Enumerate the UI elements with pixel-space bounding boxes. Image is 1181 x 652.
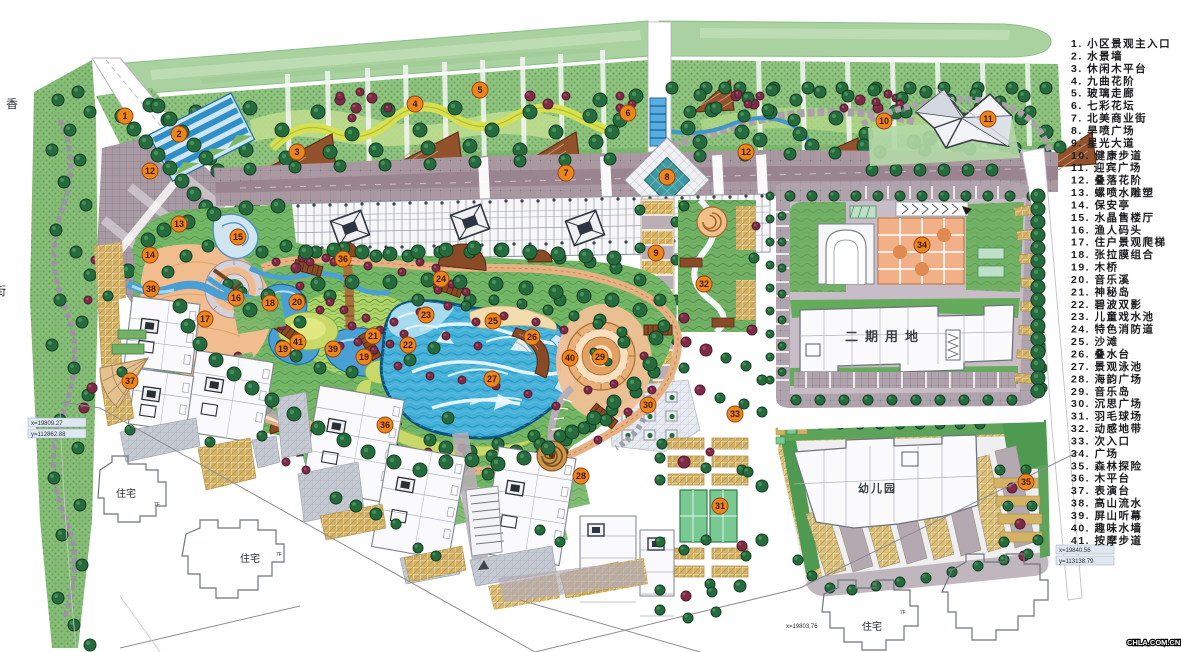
svg-text:5. 玻璃走廊: 5. 玻璃走廊 <box>1071 87 1135 100</box>
svg-text:32: 32 <box>699 279 709 289</box>
svg-text:19: 19 <box>359 352 369 362</box>
svg-text:x=19840.56: x=19840.56 <box>1059 548 1091 554</box>
svg-text:27. 景观泳池: 27. 景观泳池 <box>1071 360 1143 373</box>
svg-text:30. 沉思广场: 30. 沉思广场 <box>1071 397 1143 410</box>
svg-text:7F: 7F <box>900 610 906 616</box>
svg-text:14. 保安亭: 14. 保安亭 <box>1071 199 1131 212</box>
svg-text:38: 38 <box>146 284 156 294</box>
svg-text:39. 屏山听幕: 39. 屏山听幕 <box>1071 509 1143 522</box>
svg-text:7. 北美商业街: 7. 北美商业街 <box>1071 112 1147 125</box>
svg-text:15. 水晶售楼厅: 15. 水晶售楼厅 <box>1071 211 1155 224</box>
svg-text:9: 9 <box>653 248 658 258</box>
svg-text:34. 广场: 34. 广场 <box>1071 447 1119 460</box>
svg-text:16. 渔人码头: 16. 渔人码头 <box>1071 223 1143 236</box>
svg-text:6: 6 <box>625 108 630 118</box>
svg-text:26. 叠水台: 26. 叠水台 <box>1071 348 1131 361</box>
svg-text:7: 7 <box>563 168 568 178</box>
svg-text:17: 17 <box>200 314 210 324</box>
svg-text:36. 木平台: 36. 木平台 <box>1071 472 1131 485</box>
svg-text:10. 健康步道: 10. 健康步道 <box>1071 149 1143 162</box>
svg-text:31: 31 <box>715 501 725 511</box>
svg-text:41. 按摩步道: 41. 按摩步道 <box>1071 534 1143 547</box>
svg-text:21: 21 <box>368 331 378 341</box>
svg-text:33. 次入口: 33. 次入口 <box>1071 434 1131 447</box>
svg-text:37: 37 <box>125 376 135 386</box>
svg-text:12: 12 <box>145 166 155 176</box>
svg-text:12. 叠落花阶: 12. 叠落花阶 <box>1071 174 1143 187</box>
svg-text:20: 20 <box>292 297 302 307</box>
svg-text:19. 木桥: 19. 木桥 <box>1071 261 1119 274</box>
svg-text:37. 表演台: 37. 表演台 <box>1071 484 1131 497</box>
svg-text:29: 29 <box>595 352 605 362</box>
svg-text:23. 儿童戏水池: 23. 儿童戏水池 <box>1071 310 1155 323</box>
svg-text:7F: 7F <box>154 502 160 508</box>
svg-text:幼儿园: 幼儿园 <box>858 481 897 495</box>
svg-text:25: 25 <box>488 316 498 326</box>
svg-text:2. 水景墙: 2. 水景墙 <box>1071 49 1123 62</box>
svg-text:23: 23 <box>421 310 431 320</box>
svg-text:住宅: 住宅 <box>116 487 136 500</box>
svg-text:32. 动感地带: 32. 动感地带 <box>1071 422 1143 435</box>
svg-text:6. 七彩花坛: 6. 七彩花坛 <box>1071 99 1135 112</box>
svg-text:22. 碧波双影: 22. 碧波双影 <box>1071 298 1143 311</box>
svg-text:10: 10 <box>879 116 889 126</box>
svg-text:9. 星光大道: 9. 星光大道 <box>1071 136 1135 149</box>
svg-text:香: 香 <box>6 97 18 111</box>
svg-text:x=19803.76: x=19803.76 <box>786 624 818 630</box>
svg-text:40: 40 <box>565 353 575 363</box>
svg-text:24. 特色消防道: 24. 特色消防道 <box>1071 323 1155 336</box>
svg-text:17. 住户景观爬梯: 17. 住户景观爬梯 <box>1071 236 1167 249</box>
svg-text:41: 41 <box>293 337 303 347</box>
svg-text:y=113138.79: y=113138.79 <box>1059 559 1094 565</box>
svg-text:2: 2 <box>176 129 181 139</box>
svg-text:21. 神秘岛: 21. 神秘岛 <box>1071 285 1131 298</box>
svg-text:30: 30 <box>643 400 653 410</box>
svg-text:24: 24 <box>436 274 446 284</box>
svg-text:8: 8 <box>664 172 669 182</box>
svg-text:4: 4 <box>412 99 417 109</box>
svg-text:7F: 7F <box>276 552 282 558</box>
svg-text:36: 36 <box>338 254 348 264</box>
svg-text:35: 35 <box>1021 477 1031 487</box>
svg-text:20. 音乐溪: 20. 音乐溪 <box>1071 273 1131 286</box>
svg-text:16: 16 <box>231 293 241 303</box>
svg-text:4. 九曲花阶: 4. 九曲花阶 <box>1071 74 1135 87</box>
svg-text:11. 迎宾广场: 11. 迎宾广场 <box>1071 161 1142 174</box>
svg-text:1: 1 <box>122 111 127 121</box>
svg-text:26: 26 <box>527 332 537 342</box>
svg-text:1. 小区景观主入口: 1. 小区景观主入口 <box>1071 37 1171 50</box>
svg-text:12: 12 <box>741 147 751 157</box>
svg-text:18: 18 <box>265 298 275 308</box>
svg-text:11: 11 <box>983 114 993 124</box>
svg-text:二期用地: 二期用地 <box>845 329 925 344</box>
svg-text:19: 19 <box>278 344 288 354</box>
svg-text:40. 趣味水墙: 40. 趣味水墙 <box>1071 521 1143 534</box>
svg-text:34: 34 <box>917 240 927 250</box>
svg-text:3. 休闲木平台: 3. 休闲木平台 <box>1071 62 1147 75</box>
svg-text:18. 张拉膜组合: 18. 张拉膜组合 <box>1071 248 1155 261</box>
svg-text:38. 高山流水: 38. 高山流水 <box>1071 497 1143 510</box>
svg-text:15: 15 <box>233 232 243 242</box>
svg-text:y=112862.88: y=112862.88 <box>31 432 66 438</box>
svg-text:住宅: 住宅 <box>240 552 260 565</box>
svg-text:14: 14 <box>145 250 155 260</box>
svg-text:x=19809.27: x=19809.27 <box>31 421 63 427</box>
svg-text:街: 街 <box>0 284 6 298</box>
svg-text:27: 27 <box>487 374 497 384</box>
svg-text:CHLA.COM.CN: CHLA.COM.CN <box>1127 638 1180 647</box>
svg-text:28. 海韵广场: 28. 海韵广场 <box>1071 372 1143 385</box>
svg-text:3: 3 <box>294 147 299 157</box>
svg-text:8. 旱喷广场: 8. 旱喷广场 <box>1071 124 1135 137</box>
svg-text:住宅: 住宅 <box>862 620 882 633</box>
svg-text:39: 39 <box>328 344 338 354</box>
svg-text:33: 33 <box>730 409 740 419</box>
svg-text:22: 22 <box>403 340 413 350</box>
svg-text:13: 13 <box>174 219 184 229</box>
svg-text:35. 森林探险: 35. 森林探险 <box>1071 459 1143 472</box>
svg-text:25. 沙滩: 25. 沙滩 <box>1071 335 1119 348</box>
svg-text:36: 36 <box>380 420 390 430</box>
svg-text:5: 5 <box>477 85 482 95</box>
svg-text:28: 28 <box>576 471 586 481</box>
svg-text:31. 羽毛球场: 31. 羽毛球场 <box>1071 410 1143 423</box>
svg-text:29. 音乐岛: 29. 音乐岛 <box>1071 385 1131 398</box>
svg-text:13. 螺喷水雕塑: 13. 螺喷水雕塑 <box>1071 186 1155 199</box>
